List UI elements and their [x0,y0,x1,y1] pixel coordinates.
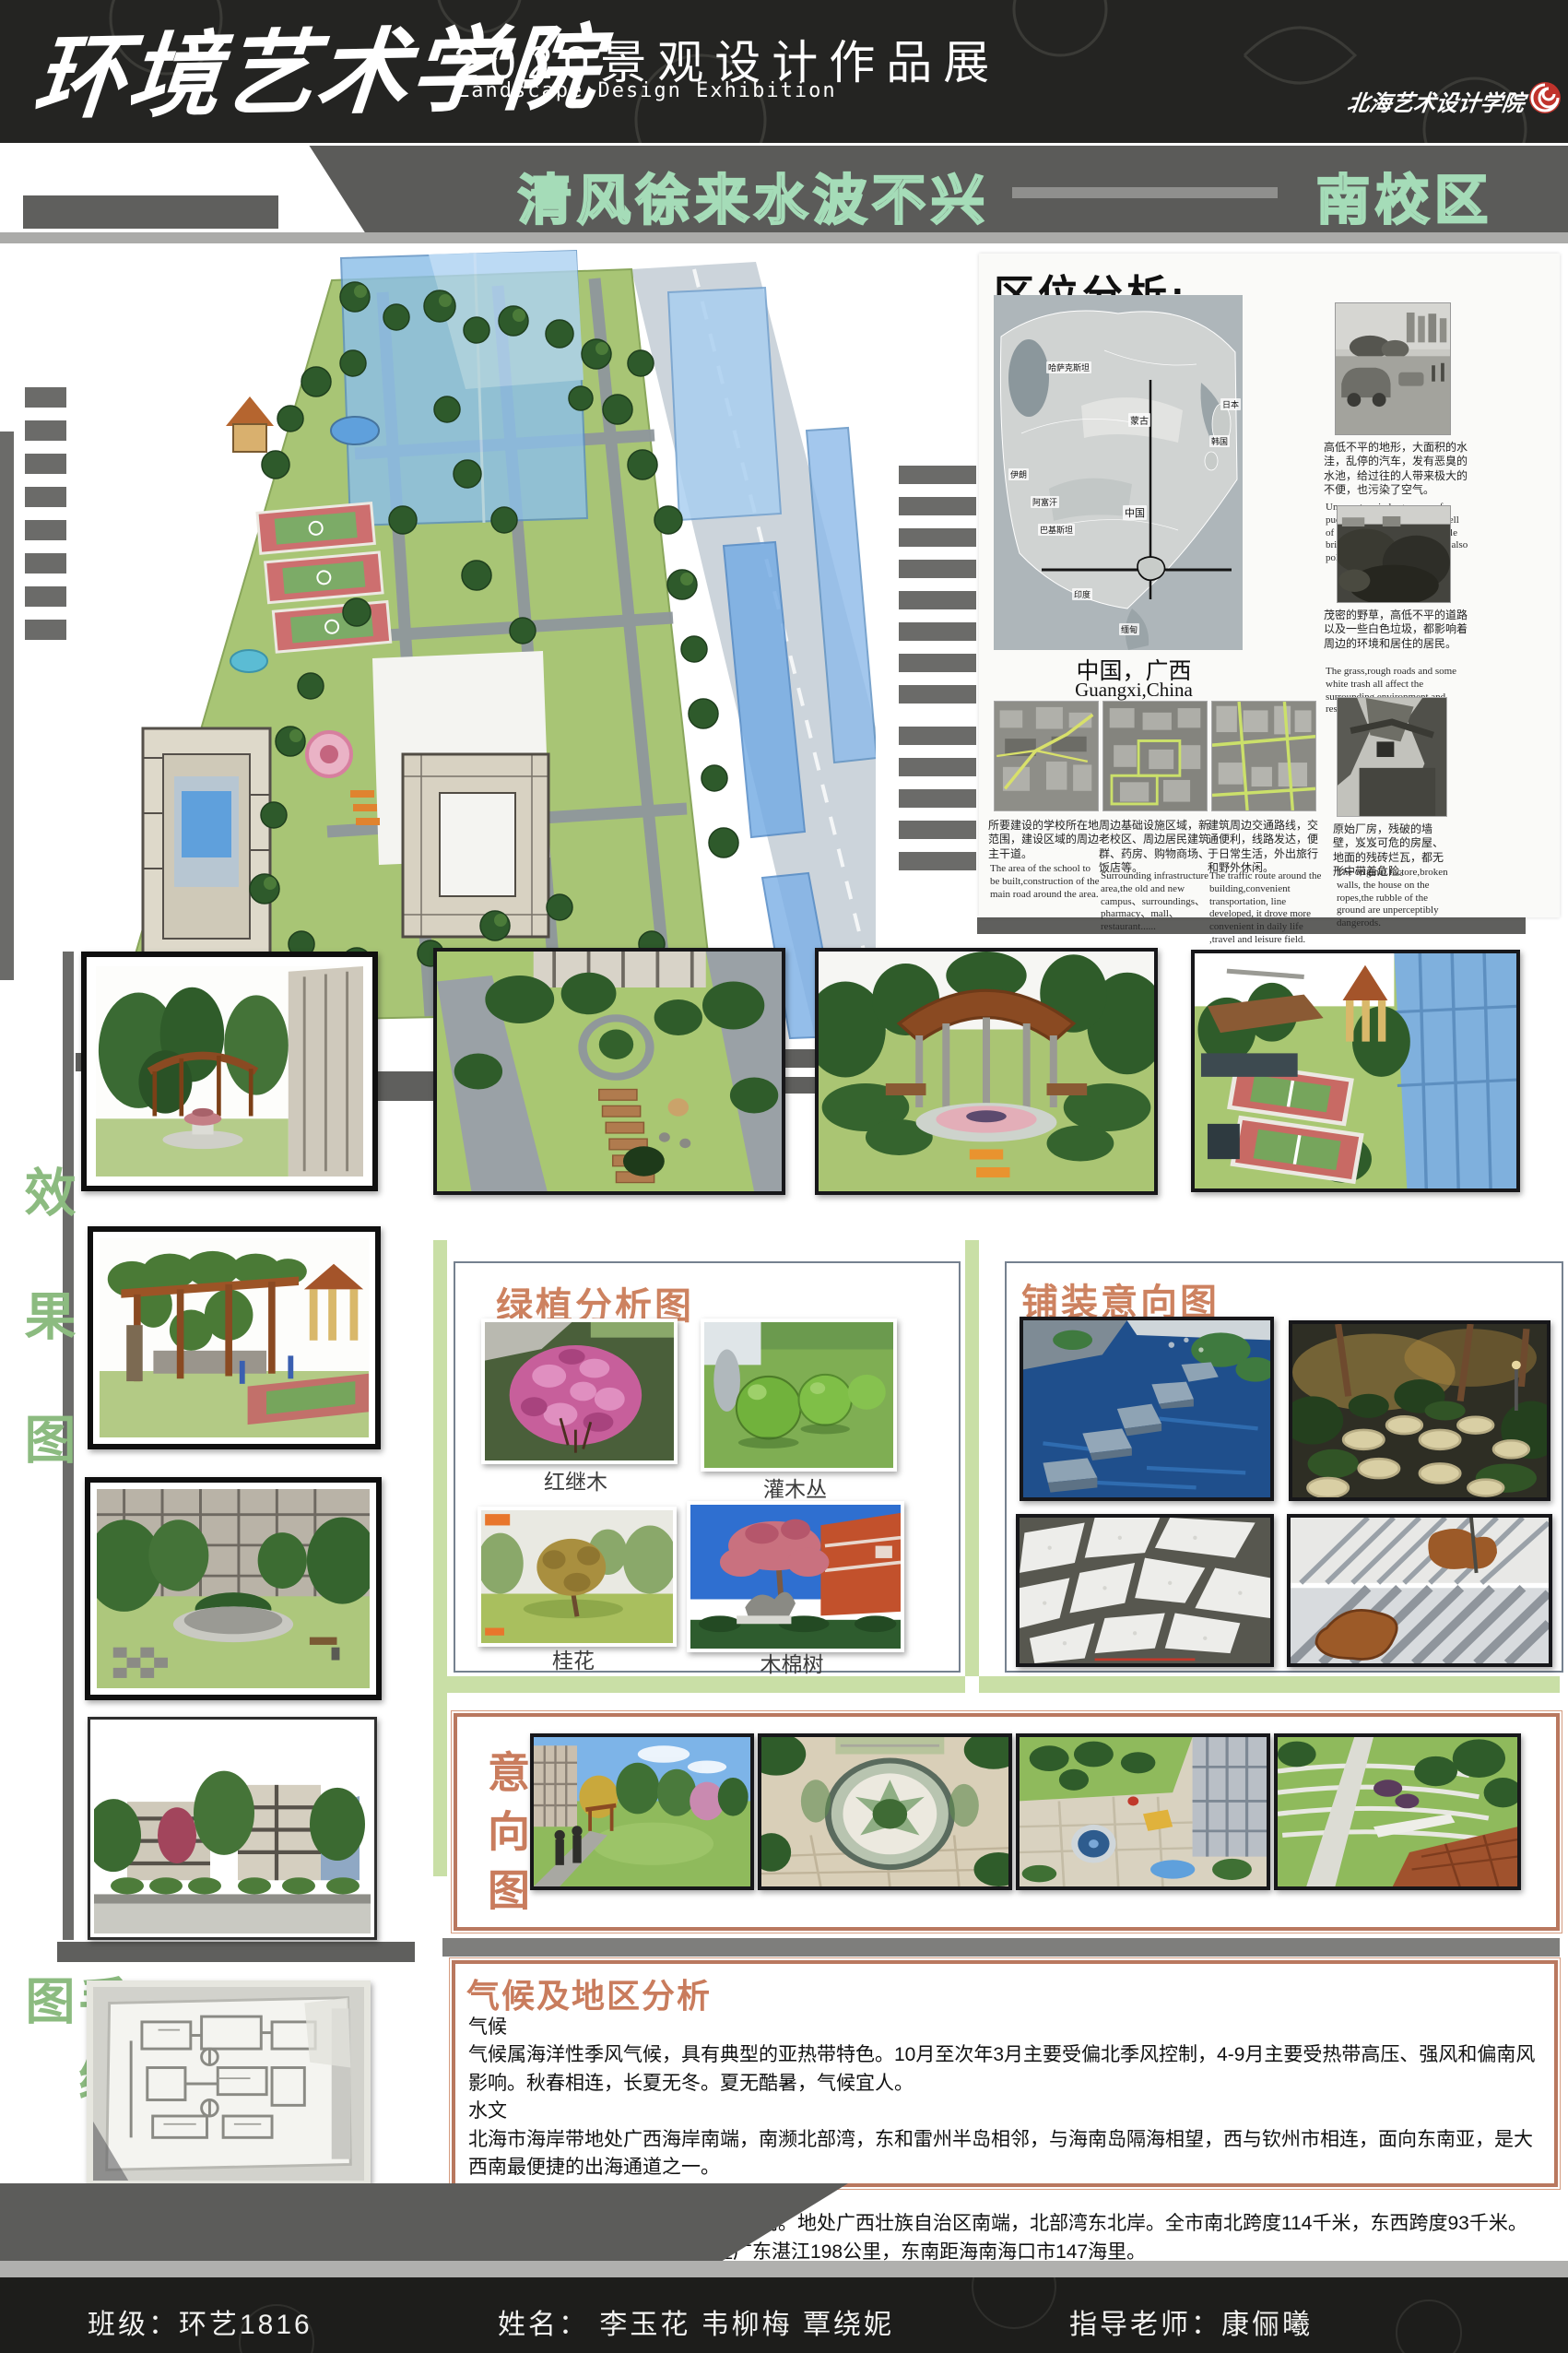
footer-class: 班级：环艺1816 [88,2301,312,2342]
plant-label: 灌木丛 [701,1472,890,1503]
map-label: 印度 [1072,588,1092,600]
decor-dashes [25,387,66,647]
effect-section-label: 效果图 [18,1165,74,1553]
render-round-pavilion [815,948,1158,1195]
header: 环境艺术学院 2020景观设计作品展 Landscape Design Exhi… [0,0,1568,143]
decor-divider-left [57,1942,415,1962]
render-vine-pergola [88,1226,381,1449]
site-plan-image [78,242,876,1039]
hand-sketch-image [87,1981,371,2187]
climate-line: 北海市海岸带地处广西海岸南端，南濒北部湾，东和雷州半岛相邻，与海南岛隔海相望，西… [468,2126,1536,2182]
plant-label: 木棉树 [687,1647,897,1678]
intent-photo-1 [530,1733,754,1890]
map-label: 缅甸 [1119,623,1139,635]
paving-photo-steppers [1289,1320,1550,1501]
climate-line: 气候属海洋性季风气候，具有典型的亚热带特色。10月至次年3月主要受偏北季风控制，… [468,2041,1536,2098]
climate-line: 水文 [468,2098,1536,2125]
intent-photo-2 [758,1733,1012,1890]
plant-label: 红继木 [481,1464,670,1496]
map-label: 阿富汗 [1031,496,1059,508]
thumb3-caption-en: The traffic route around the building,co… [1209,870,1322,947]
map-label: 韩国 [1209,435,1230,447]
green-frame-strip [979,1676,1560,1693]
exhibition-title-en: Landscape Design Exhibition [457,79,837,102]
banner-divider-line [1012,187,1278,198]
thumb3-caption-cn: 建筑周边交通路线，交通便利，线路发达，便于日常生活，外出旅行和野外休闲。 [1208,819,1322,875]
render-planter-plaza [85,1477,382,1700]
thumb4-caption-en: The original factore,broken walls, the h… [1337,867,1453,930]
paving-photo-stripes [1287,1514,1552,1667]
footer-light-strip [0,2261,1568,2277]
decor-divider-right [442,1938,1560,1957]
decor-dashes [899,466,976,704]
climate-line: 气候 [468,2014,1536,2041]
ruins-thumb-4 [1337,697,1447,817]
china-map-image [994,295,1243,650]
plant-photo-shrubs [701,1318,897,1472]
site-condition-photo-1 [1335,302,1451,435]
thumb1-caption-cn: 所要建设的学校所在地范围，建设区域的周边主干道。 [988,819,1102,861]
render-courts-tower [1191,950,1520,1192]
map-label: 蒙古 [1128,413,1150,427]
map-label: 哈萨克斯坦 [1046,361,1091,373]
paving-photo-terrazzo [1016,1514,1274,1667]
thumb1-caption-en: The area of the school to be built,const… [990,863,1101,901]
aerial-thumb-1 [994,701,1099,811]
map-label: 巴基斯坦 [1038,524,1075,536]
school-logo-icon [1527,79,1563,116]
plant-label: 桂花 [477,1643,669,1674]
intent-photo-4 [1274,1733,1521,1890]
logo-text: 北海艺术设计学院 [1346,85,1527,117]
banner-slogan: 清风徐来水波不兴 [518,157,990,234]
aerial-thumb-3 [1211,701,1316,811]
plant-photo-kapok [687,1501,904,1652]
decor-bar [0,432,14,980]
decor-bar [23,195,278,229]
poster: 环境艺术学院 2020景观设计作品展 Landscape Design Exhi… [0,0,1568,2353]
climate-title: 气候及地区分析 [466,1969,712,2017]
paving-photo-water-steps [1020,1317,1274,1501]
footer-teacher: 指导老师：康俪曦 [1069,2301,1313,2342]
render-pergola-fountain [81,952,378,1191]
green-frame-strip [433,1676,965,1693]
thumb2-caption-cn: 周边基础设施区域，新老校区、周边居民建筑群、药房、购物商场、饭店等。 [1099,819,1213,875]
photo1-caption-cn: 高低不平的地形，大面积的水洼，乱停的汽车，发有恶臭的水池，给过往的人带来极大的不… [1324,441,1469,497]
site-condition-photo-2 [1337,505,1451,603]
intent-photo-3 [1016,1733,1270,1890]
map-caption-en: Guangxi,China [1051,679,1217,702]
thumb2-caption-en: Surrounding infrastructure area,the old … [1101,870,1211,934]
map-label: 中国 [1123,505,1147,520]
green-frame-strip [965,1240,979,1676]
render-aerial-lawn [433,948,785,1195]
render-building-elevation [88,1717,377,1940]
footer-names: 姓名： 李玉花 韦柳梅 覃绕妮 [498,2301,894,2342]
map-label: 日本 [1220,398,1241,410]
photo2-caption-cn: 茂密的野草，高低不平的道路以及一些白色垃圾，都影响着周边的环境和居住的居民。 [1324,609,1469,651]
plant-photo-hongjimu [481,1318,678,1464]
banner-campus: 南校区 [1316,157,1493,234]
map-label: 伊朗 [1008,468,1029,480]
green-frame-strip [433,1240,447,1876]
intent-label: 意向图 [476,1750,536,1934]
decor-dashes [899,727,976,870]
aerial-thumb-2 [1102,701,1208,811]
plant-photo-guihua [477,1507,677,1647]
